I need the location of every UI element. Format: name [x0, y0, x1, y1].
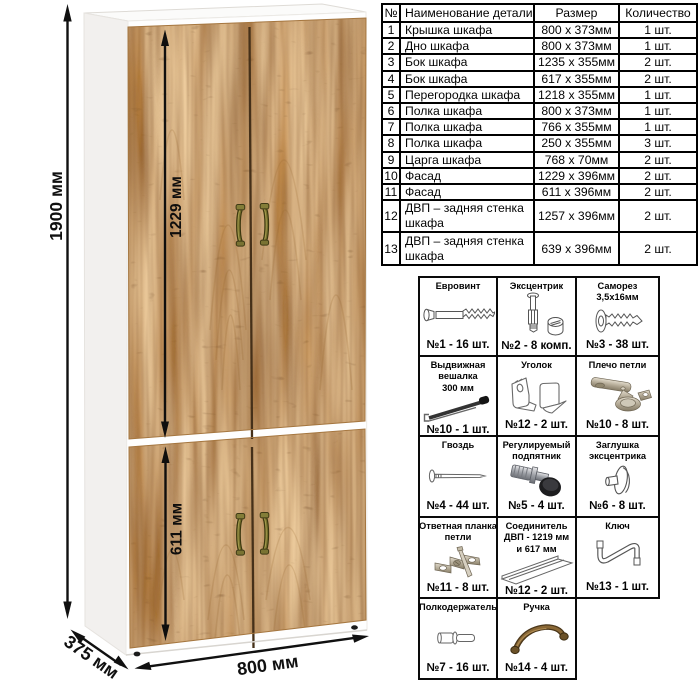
svg-text:1229 мм: 1229 мм — [168, 176, 185, 238]
svg-text:611 мм: 611 мм — [169, 503, 186, 555]
svg-text:1900 мм: 1900 мм — [46, 171, 66, 241]
svg-text:800 мм: 800 мм — [236, 651, 300, 679]
